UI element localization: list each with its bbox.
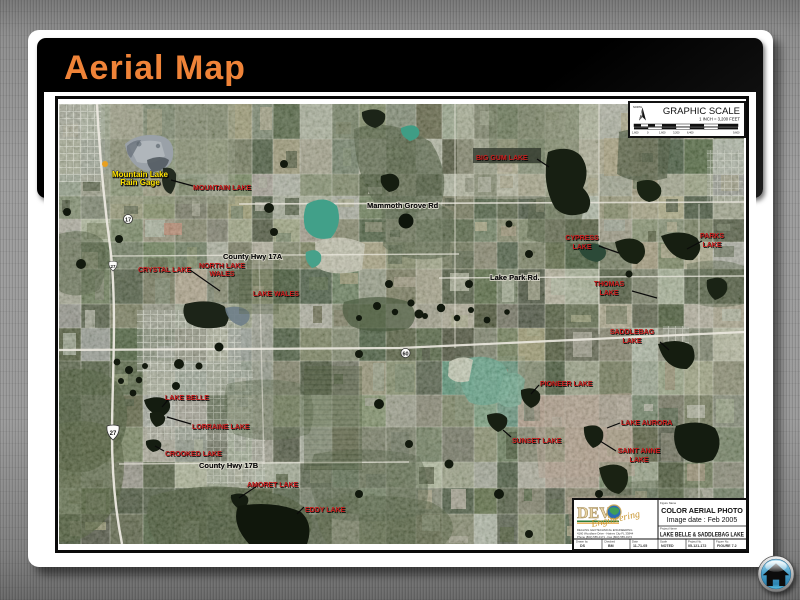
svg-text:11-71-05: 11-71-05	[633, 544, 647, 548]
svg-text:PIONEER LAKE: PIONEER LAKE	[540, 381, 593, 388]
svg-text:LAKE: LAKE	[629, 457, 648, 464]
svg-text:LAKE BELLE: LAKE BELLE	[165, 395, 209, 402]
svg-text:SADDLEBAG: SADDLEBAG	[610, 329, 655, 336]
svg-text:County Hwy 17A: County Hwy 17A	[223, 252, 283, 261]
svg-text:SUNSET LAKE: SUNSET LAKE	[512, 438, 562, 445]
svg-text:27: 27	[110, 431, 117, 437]
svg-text:Project Name: Project Name	[660, 527, 677, 531]
svg-text:1 INCH = 3,200 FEET: 1 INCH = 3,200 FEET	[699, 117, 740, 122]
svg-text:CRYSTAL LAKE: CRYSTAL LAKE	[138, 267, 191, 274]
svg-text:0: 0	[647, 131, 649, 135]
svg-text:05-121-172: 05-121-172	[688, 544, 706, 548]
svg-text:LAKE: LAKE	[572, 244, 591, 251]
svg-text:Lake Park Rd.: Lake Park Rd.	[490, 273, 540, 282]
svg-text:Project No.: Project No.	[688, 540, 702, 544]
svg-text:N: N	[639, 111, 642, 116]
svg-text:FIGURE 7.2: FIGURE 7.2	[717, 544, 737, 548]
svg-text:LAKE WALES: LAKE WALES	[253, 291, 299, 298]
svg-text:Image date : Feb 2005: Image date : Feb 2005	[667, 517, 738, 524]
svg-text:Phone (863) 555-0171 - Fax (: Phone (863) 555-0171 - Fax (863) 555-017…	[577, 535, 632, 539]
svg-text:Rain Gage: Rain Gage	[120, 178, 160, 187]
svg-text:17: 17	[125, 218, 131, 224]
svg-text:GRAPHIC SCALE: GRAPHIC SCALE	[663, 106, 740, 117]
svg-text:9,600: 9,600	[733, 131, 740, 135]
svg-text:CROOKED LAKE: CROOKED LAKE	[165, 451, 222, 458]
svg-text:CYPRESS: CYPRESS	[565, 235, 599, 242]
svg-text:BIG GUM LAKE: BIG GUM LAKE	[476, 155, 528, 162]
svg-text:1,600: 1,600	[632, 131, 639, 135]
svg-text:County Hwy 17B: County Hwy 17B	[199, 461, 259, 470]
svg-text:MOUNTAIN LAKE: MOUNTAIN LAKE	[193, 185, 252, 192]
svg-text:LAKE BELLE & SADDLEBAG LAKE: LAKE BELLE & SADDLEBAG LAKE	[660, 533, 744, 539]
svg-text:Mammoth Grove Rd: Mammoth Grove Rd	[367, 201, 439, 210]
svg-text:NOTED: NOTED	[661, 544, 674, 548]
svg-text:Drawn by: Drawn by	[576, 540, 588, 544]
svg-text:WALES: WALES	[210, 271, 235, 278]
svg-text:3,200: 3,200	[673, 131, 680, 135]
svg-text:27: 27	[110, 264, 116, 269]
svg-text:NORTH: NORTH	[633, 105, 642, 109]
svg-text:Date: Date	[632, 540, 638, 544]
svg-text:1,600: 1,600	[659, 131, 666, 135]
svg-text:COLOR AERIAL PHOTO: COLOR AERIAL PHOTO	[661, 506, 743, 515]
svg-text:Checked: Checked	[604, 540, 615, 544]
svg-text:PARKS: PARKS	[700, 233, 724, 240]
svg-text:Scale: Scale	[660, 540, 667, 544]
svg-text:LAKE AURORA: LAKE AURORA	[621, 420, 672, 427]
svg-text:SAINT ANNE: SAINT ANNE	[618, 448, 661, 455]
svg-text:Figure No.: Figure No.	[716, 540, 729, 544]
svg-text:LAKE: LAKE	[622, 338, 641, 345]
svg-text:LAKE: LAKE	[702, 242, 721, 249]
svg-text:Figure Name: Figure Name	[660, 501, 677, 505]
svg-text:BM: BM	[608, 544, 614, 548]
svg-text:NORTH LAKE: NORTH LAKE	[199, 263, 245, 270]
svg-text:AMORET LAKE: AMORET LAKE	[247, 482, 299, 489]
svg-text:60: 60	[402, 351, 408, 357]
svg-text:THOMAS: THOMAS	[594, 281, 625, 288]
svg-text:EDDY LAKE: EDDY LAKE	[305, 507, 346, 514]
svg-text:LAKE: LAKE	[599, 290, 618, 297]
svg-text:6,400: 6,400	[687, 131, 694, 135]
svg-text:DS: DS	[580, 544, 586, 548]
svg-text:LORRAINE LAKE: LORRAINE LAKE	[192, 424, 250, 431]
